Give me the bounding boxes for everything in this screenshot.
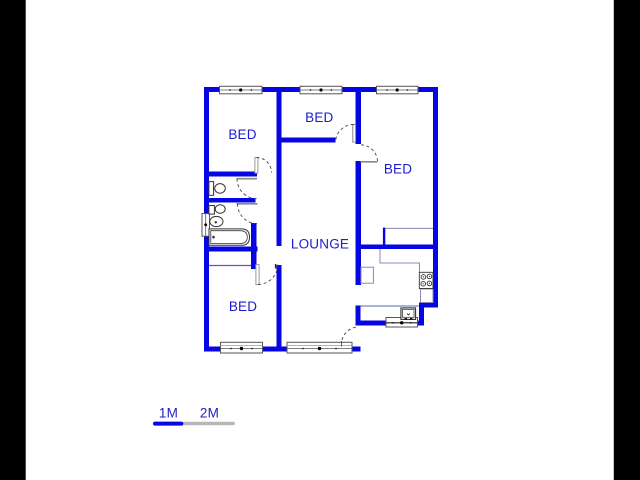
svg-text:2M: 2M bbox=[200, 406, 219, 421]
svg-text:BED: BED bbox=[229, 299, 257, 314]
svg-text:BED: BED bbox=[228, 127, 256, 142]
svg-text:1M: 1M bbox=[159, 406, 178, 421]
svg-text:BED: BED bbox=[305, 110, 333, 125]
svg-text:LOUNGE: LOUNGE bbox=[291, 237, 349, 252]
svg-text:BED: BED bbox=[384, 162, 412, 177]
